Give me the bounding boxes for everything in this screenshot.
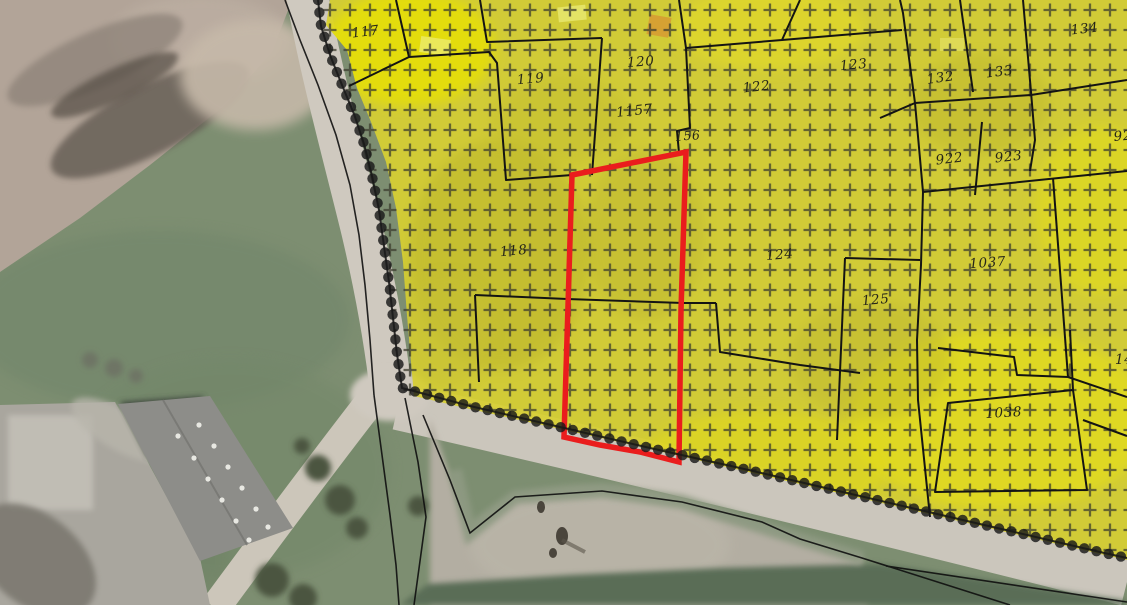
parcel-label: 122 — [742, 78, 771, 97]
parcel-label: 1037 — [969, 254, 1007, 273]
parcel-label: 125 — [861, 291, 890, 309]
parcel-label: 119 — [516, 70, 545, 88]
parcel-label: 156 — [674, 127, 701, 144]
parcel-label: 118 — [499, 242, 528, 260]
parcel-label: 123 — [839, 56, 868, 74]
parcel-label: 117 — [351, 22, 380, 41]
parcel-label: 120 — [626, 53, 655, 71]
parcel-label: 1038 — [985, 404, 1023, 422]
parcel-label: 922 — [935, 149, 964, 168]
parcel-label: 124 — [765, 246, 794, 264]
parcel-label: 14 — [1115, 352, 1127, 368]
parcel-label: 134 — [1070, 20, 1099, 39]
parcel-label: 133 — [985, 62, 1014, 81]
parcel-label: 92 — [1113, 127, 1127, 145]
map-svg: 117 119 120 122 123 132 133 134 922 923 … — [0, 0, 1127, 605]
map-canvas[interactable]: 117 119 120 122 123 132 133 134 922 923 … — [0, 0, 1127, 605]
parcel-label: 923 — [994, 148, 1023, 167]
